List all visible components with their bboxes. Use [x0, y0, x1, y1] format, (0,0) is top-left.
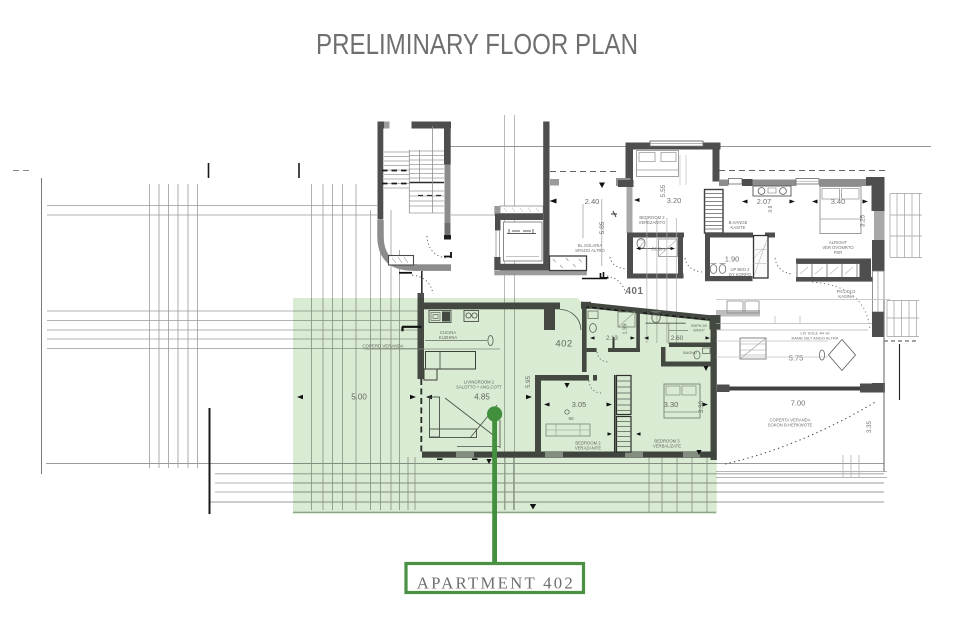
svg-text:1.90: 1.90	[725, 255, 739, 264]
svg-text:3.40: 3.40	[831, 197, 845, 206]
svg-text:0.9: 0.9	[768, 205, 774, 212]
svg-text:5.75: 5.75	[789, 354, 803, 363]
svg-text:PRELIMINARY FLOOR PLAN: PRELIMINARY FLOOR PLAN	[316, 29, 638, 61]
svg-text:KASINA: KASINA	[838, 294, 854, 299]
svg-text:SPAZIO ALTRO: SPAZIO ALTRO	[575, 248, 605, 253]
svg-text:3.20: 3.20	[667, 196, 681, 205]
svg-text:7.00: 7.00	[791, 399, 805, 408]
svg-text:2.40: 2.40	[585, 197, 600, 206]
svg-text:C0.9m: C0.9m	[651, 247, 665, 252]
svg-text:2.07: 2.07	[757, 197, 771, 206]
svg-text:PER: PER	[834, 250, 843, 255]
svg-text:3.25: 3.25	[860, 214, 867, 227]
svg-text:DY KORPO: DY KORPO	[729, 272, 752, 277]
svg-text:RAME BILT ANGO ALTRA: RAME BILT ANGO ALTRA	[792, 336, 839, 341]
svg-text:KASITE: KASITE	[731, 225, 746, 230]
svg-text:401: 401	[626, 286, 644, 297]
svg-text:VEREZANITO: VEREZANITO	[639, 220, 666, 225]
svg-text:SOKON B-HERKWOTE: SOKON B-HERKWOTE	[768, 423, 813, 428]
svg-text:5.85: 5.85	[599, 221, 606, 234]
svg-text:3.35: 3.35	[866, 420, 873, 433]
